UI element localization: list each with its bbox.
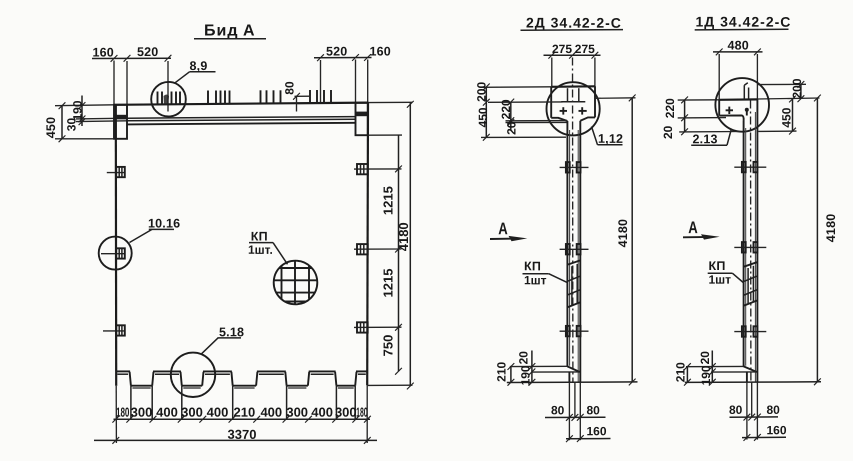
svg-text:190: 190 [518,365,532,385]
svg-text:80: 80 [586,403,600,417]
svg-text:160: 160 [369,45,391,59]
svg-text:А: А [243,23,256,40]
svg-text:4180: 4180 [824,214,838,243]
svg-text:180: 180 [356,405,368,420]
svg-text:20: 20 [505,121,519,135]
svg-text:160: 160 [766,423,786,437]
svg-text:220: 220 [499,99,513,119]
svg-text:200: 200 [790,78,804,98]
svg-text:80: 80 [283,81,297,95]
svg-text:20: 20 [698,351,712,365]
svg-text:160: 160 [92,46,114,60]
svg-text:220: 220 [663,98,677,118]
svg-text:80: 80 [551,403,565,417]
svg-text:300: 300 [181,405,203,420]
svg-text:8,9: 8,9 [189,59,207,73]
svg-text:20: 20 [517,351,531,365]
svg-text:400: 400 [311,405,333,420]
svg-text:1Д 34.42-2-С: 1Д 34.42-2-С [695,14,791,30]
svg-text:80: 80 [766,403,780,417]
svg-text:А: А [688,218,698,237]
svg-text:4180: 4180 [396,222,411,251]
svg-text:4180: 4180 [616,219,630,248]
svg-text:210: 210 [673,362,687,382]
svg-text:1215: 1215 [380,186,395,215]
svg-text:520: 520 [137,45,159,59]
svg-text:400: 400 [156,405,178,420]
svg-text:180: 180 [116,405,130,420]
svg-text:190: 190 [699,365,713,385]
svg-text:10.16: 10.16 [148,217,180,231]
svg-text:275: 275 [552,42,572,56]
svg-text:520: 520 [326,45,348,59]
svg-text:2Д 34.42-2-С: 2Д 34.42-2-С [526,15,622,31]
svg-text:5.18: 5.18 [219,325,244,339]
svg-text:1шт: 1шт [524,273,547,287]
svg-text:160: 160 [586,424,606,438]
svg-text:1шт.: 1шт. [248,243,273,257]
svg-text:КП: КП [708,259,725,273]
svg-text:Бид: Бид [204,23,239,40]
svg-text:480: 480 [727,39,749,53]
svg-text:400: 400 [260,405,282,420]
svg-text:1,12: 1,12 [598,132,623,146]
svg-text:400: 400 [207,405,229,420]
svg-text:275: 275 [575,42,595,56]
svg-text:300: 300 [335,405,357,420]
svg-text:30: 30 [65,118,79,132]
svg-text:190: 190 [71,100,85,120]
svg-text:750: 750 [380,335,395,357]
svg-text:А: А [498,219,508,238]
svg-text:80: 80 [729,403,743,417]
svg-text:300: 300 [286,405,308,420]
svg-text:210: 210 [494,361,508,381]
svg-text:2.13: 2.13 [692,132,717,146]
svg-text:450: 450 [44,117,58,138]
svg-text:КП: КП [524,259,541,273]
svg-text:20: 20 [661,125,675,139]
svg-text:450: 450 [779,107,793,127]
svg-text:450: 450 [476,107,490,127]
svg-text:1215: 1215 [380,269,395,298]
svg-text:200: 200 [475,81,489,101]
svg-text:3370: 3370 [227,427,256,442]
svg-text:КП: КП [251,230,268,244]
svg-text:210: 210 [234,405,256,420]
svg-text:300: 300 [131,405,153,420]
svg-text:1шт: 1шт [708,273,731,287]
